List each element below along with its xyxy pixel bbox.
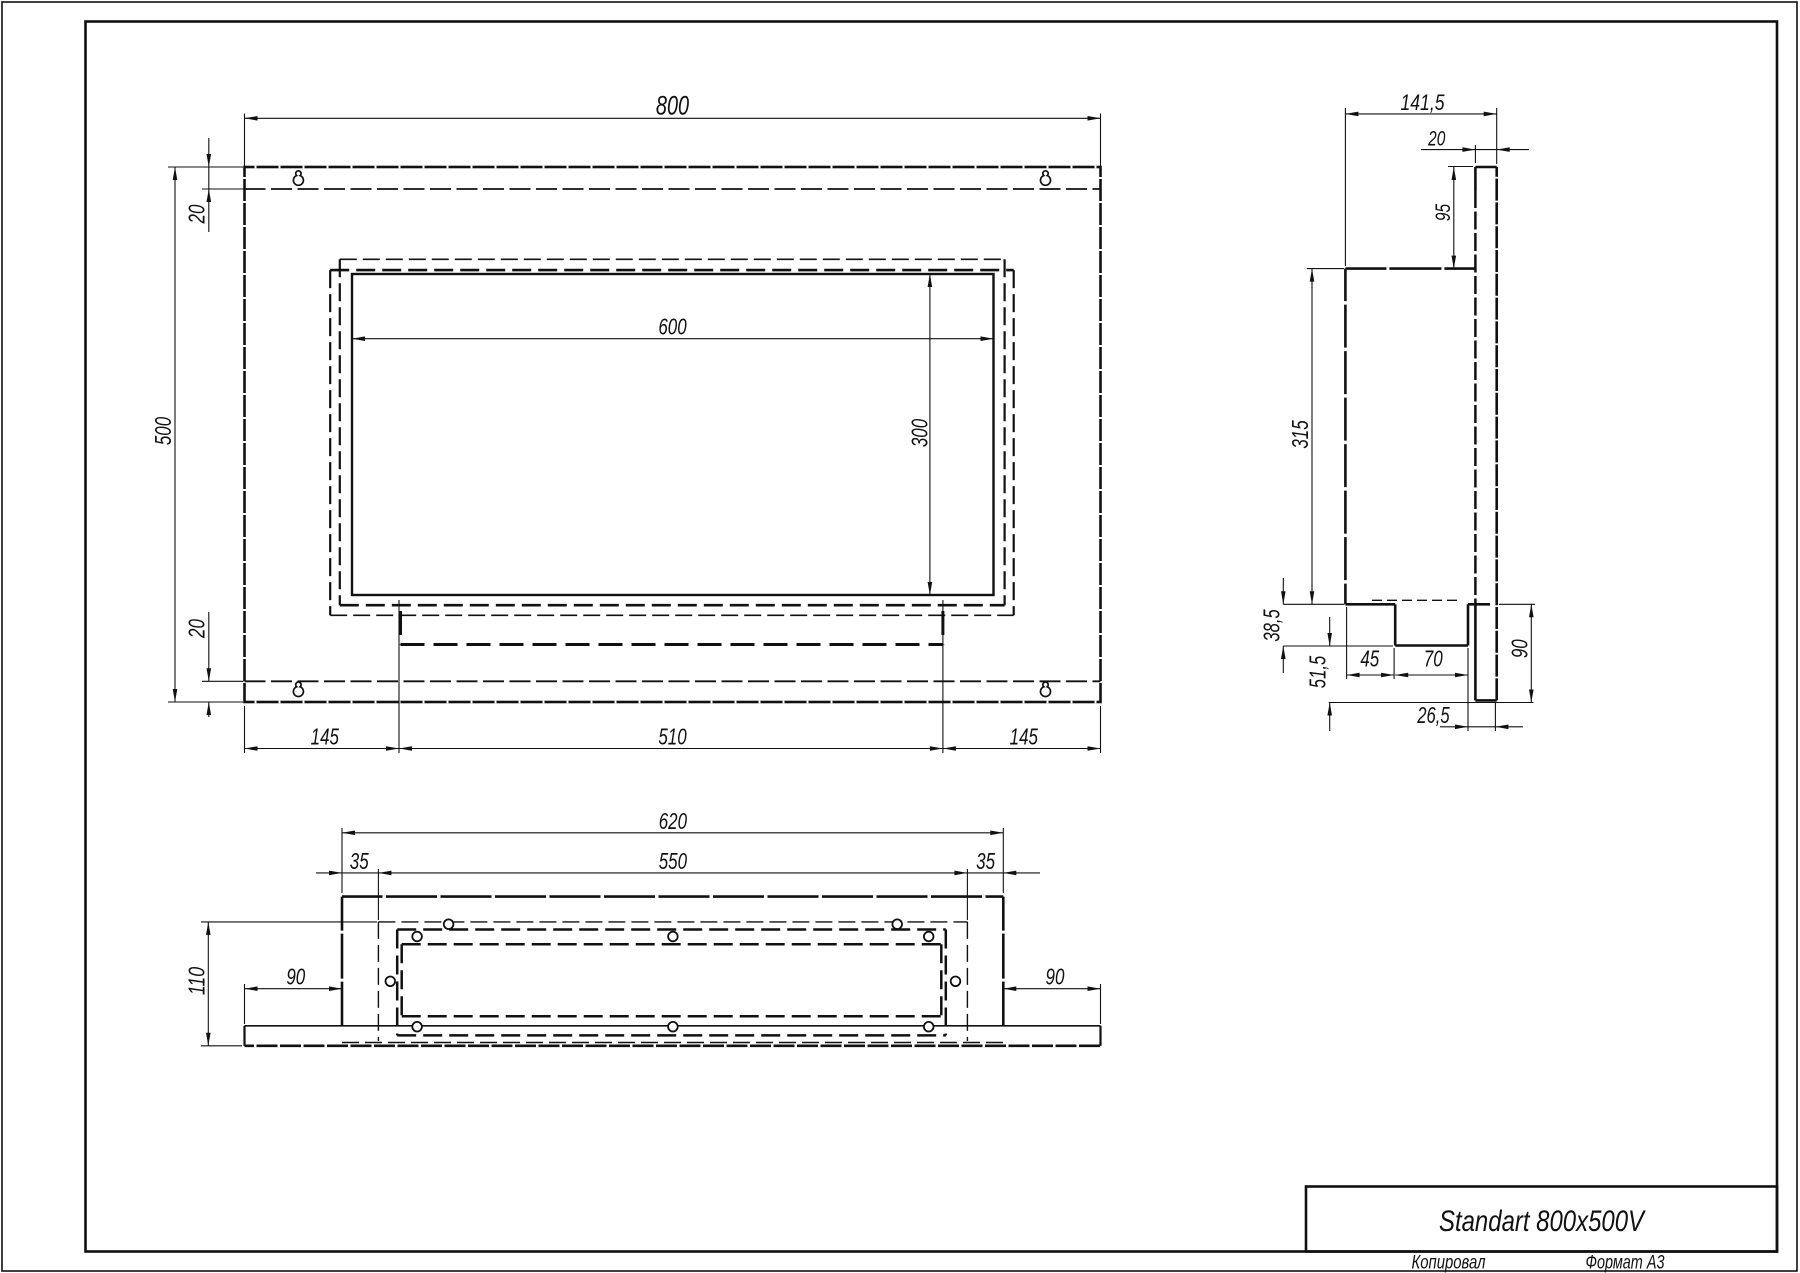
- svg-text:500: 500: [150, 417, 176, 445]
- svg-text:70: 70: [1424, 645, 1443, 671]
- svg-text:26,5: 26,5: [1416, 702, 1449, 728]
- svg-text:Копировал: Копировал: [1412, 1253, 1486, 1273]
- svg-text:300: 300: [907, 419, 933, 447]
- svg-text:90: 90: [1506, 639, 1532, 658]
- svg-text:20: 20: [184, 204, 210, 224]
- svg-text:90: 90: [286, 964, 305, 990]
- svg-text:510: 510: [658, 724, 686, 750]
- svg-text:800: 800: [656, 90, 689, 120]
- svg-text:90: 90: [1046, 964, 1065, 990]
- svg-text:Standart 800x500V: Standart 800x500V: [1439, 1205, 1646, 1238]
- svg-text:315: 315: [1287, 420, 1313, 448]
- svg-text:38,5: 38,5: [1258, 609, 1284, 642]
- svg-text:110: 110: [183, 967, 209, 995]
- svg-text:600: 600: [658, 314, 686, 340]
- svg-text:Формат А3: Формат А3: [1586, 1253, 1665, 1273]
- svg-text:20: 20: [184, 619, 210, 639]
- svg-text:95: 95: [1432, 204, 1455, 221]
- svg-text:141,5: 141,5: [1401, 90, 1446, 115]
- svg-text:51,5: 51,5: [1305, 656, 1331, 689]
- svg-text:35: 35: [350, 848, 369, 874]
- svg-text:20: 20: [1427, 128, 1445, 151]
- svg-text:45: 45: [1360, 645, 1379, 671]
- svg-text:550: 550: [659, 848, 687, 874]
- svg-text:145: 145: [311, 724, 339, 750]
- svg-text:620: 620: [659, 808, 687, 834]
- svg-text:145: 145: [1010, 724, 1038, 750]
- svg-text:35: 35: [976, 848, 995, 874]
